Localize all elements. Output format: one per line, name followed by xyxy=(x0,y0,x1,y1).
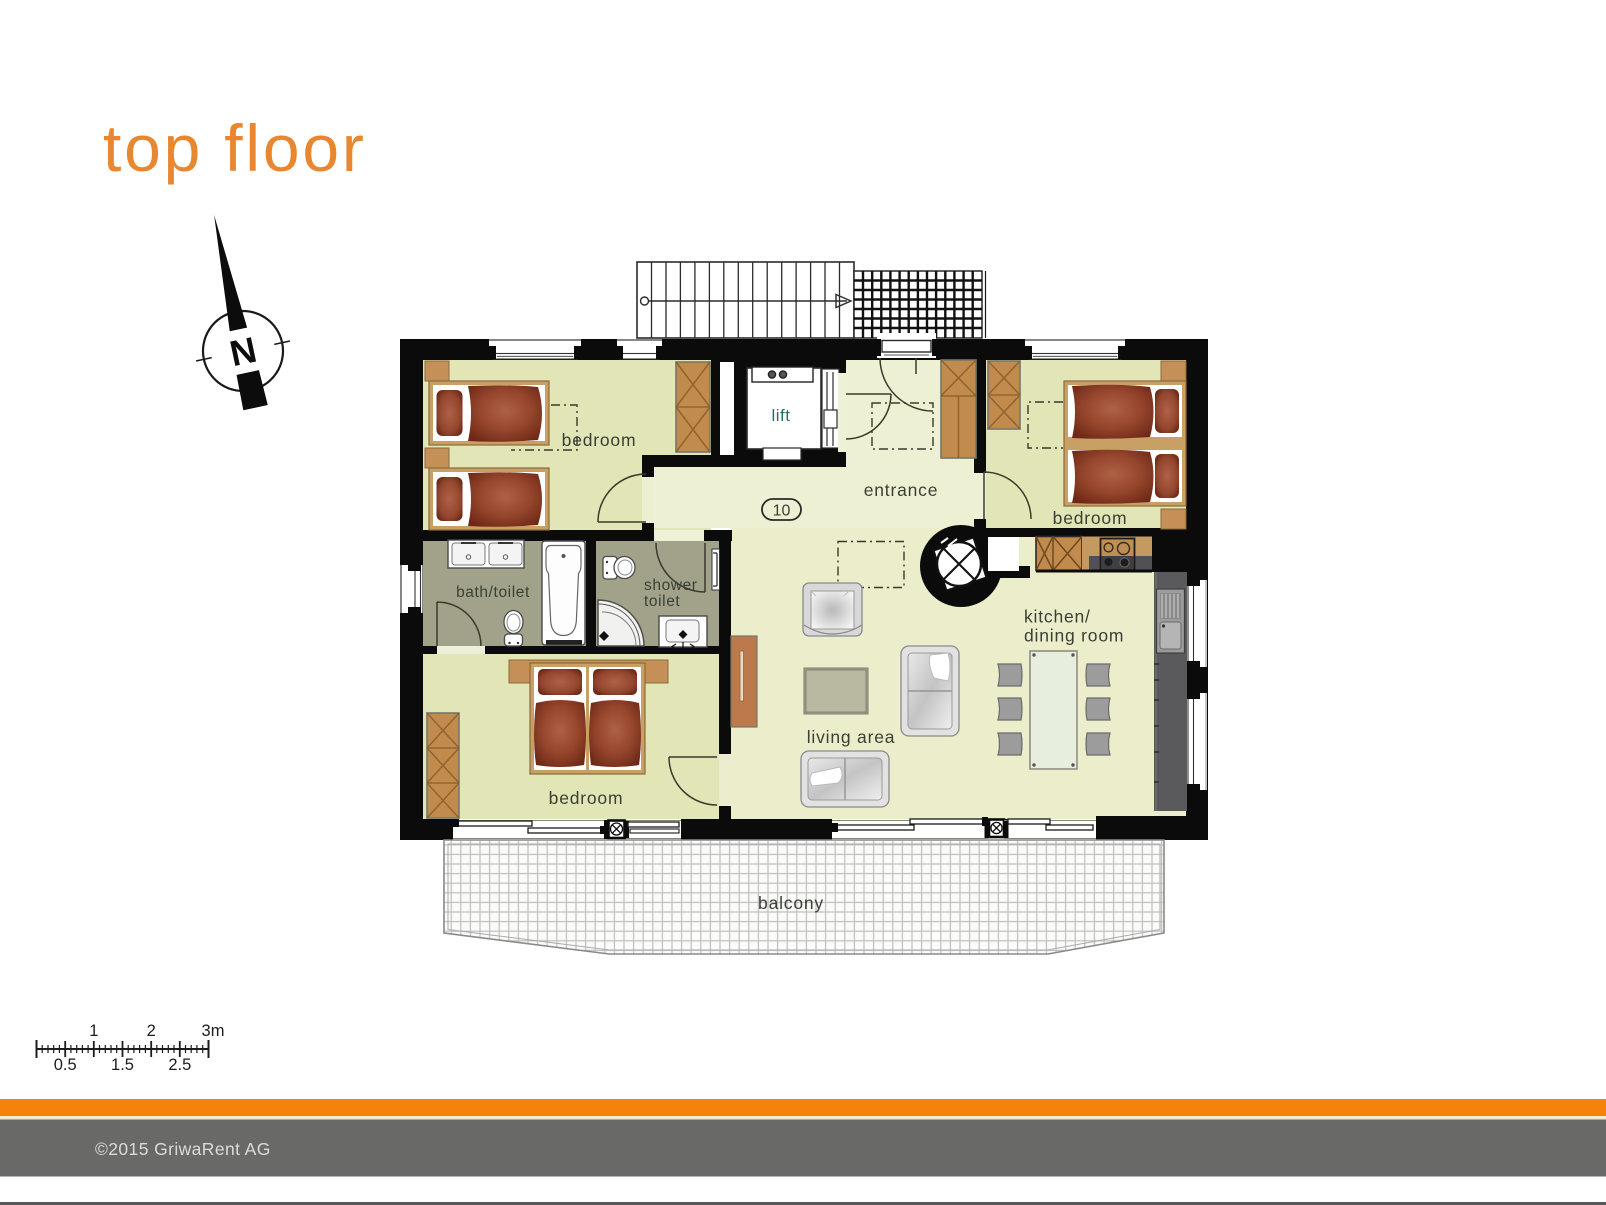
svg-text:3m: 3m xyxy=(202,1022,225,1040)
svg-text:shower: shower xyxy=(644,577,698,594)
svg-text:kitchen/: kitchen/ xyxy=(1024,607,1091,627)
svg-text:0.5: 0.5 xyxy=(54,1056,77,1074)
svg-text:lift: lift xyxy=(772,406,791,425)
svg-text:dining room: dining room xyxy=(1024,626,1124,646)
svg-text:1: 1 xyxy=(89,1022,98,1040)
svg-text:bedroom: bedroom xyxy=(549,788,624,808)
svg-text:2.5: 2.5 xyxy=(168,1056,191,1074)
svg-text:living area: living area xyxy=(807,727,896,747)
svg-text:top floor: top floor xyxy=(103,111,367,185)
svg-text:bedroom: bedroom xyxy=(1053,508,1128,528)
svg-text:toilet: toilet xyxy=(644,593,680,610)
svg-text:entrance: entrance xyxy=(864,480,939,500)
svg-text:balcony: balcony xyxy=(758,893,824,913)
svg-text:1.5: 1.5 xyxy=(111,1056,134,1074)
svg-text:2: 2 xyxy=(147,1022,156,1040)
svg-text:10: 10 xyxy=(773,503,791,520)
svg-text:bedroom: bedroom xyxy=(562,430,637,450)
svg-text:bath/toilet: bath/toilet xyxy=(456,584,530,601)
svg-text:©2015 GriwaRent AG: ©2015 GriwaRent AG xyxy=(95,1139,271,1159)
